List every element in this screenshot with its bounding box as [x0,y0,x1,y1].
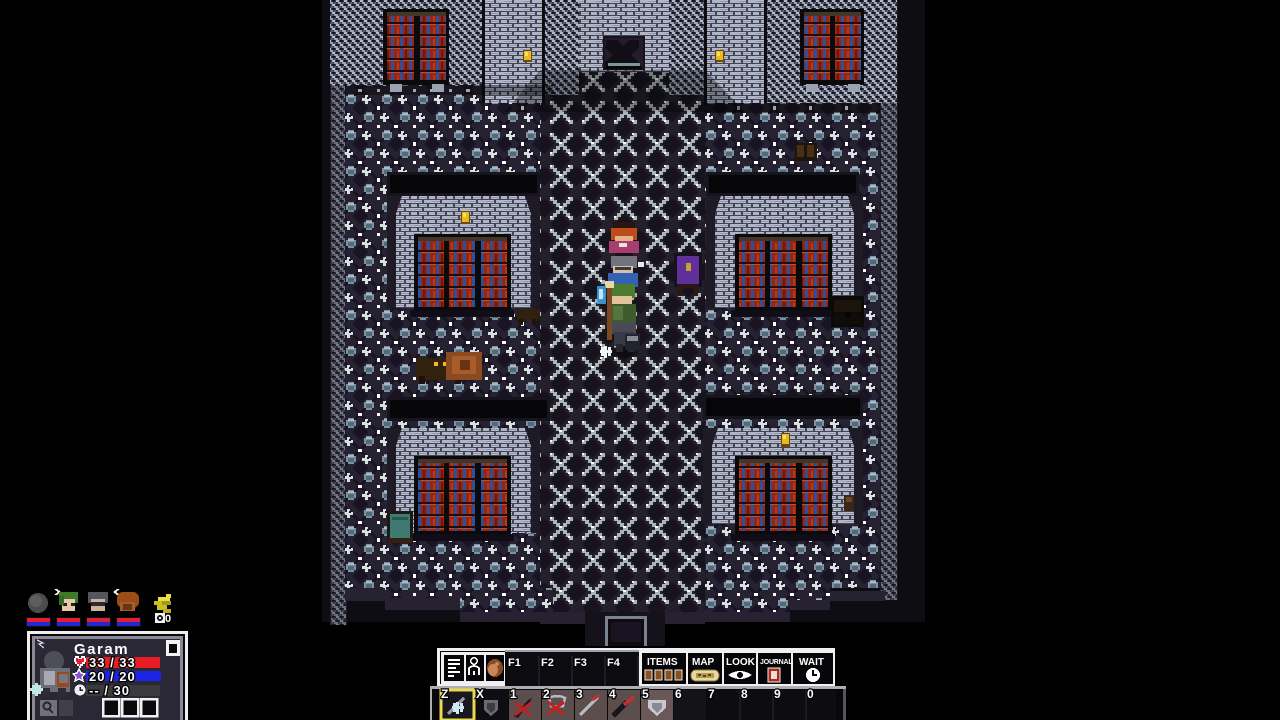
svg-text:F4: F4 [607,657,621,669]
svg-text:X: X [476,687,484,701]
svg-text:MAP: MAP [692,657,715,668]
svg-text:WAIT: WAIT [799,657,824,668]
svg-text:ITEMS: ITEMS [647,657,678,668]
svg-text:1: 1 [510,687,517,701]
svg-text:3: 3 [576,687,583,701]
svg-text:5: 5 [642,687,649,701]
svg-text:20 / 20: 20 / 20 [89,669,136,684]
svg-text:2: 2 [543,687,550,701]
svg-text:JOURNAL: JOURNAL [760,659,793,666]
svg-text:9: 9 [774,687,781,701]
svg-text:-- / 30: -- / 30 [89,683,130,698]
svg-text:0: 0 [165,613,171,625]
svg-text:F1: F1 [508,657,521,669]
svg-text:F3: F3 [574,657,587,669]
svg-text:F2: F2 [541,657,554,669]
svg-text:LOOK: LOOK [726,657,756,668]
svg-text:0: 0 [807,687,814,701]
svg-text:4: 4 [609,687,616,701]
svg-text:33 / 33: 33 / 33 [89,655,136,670]
svg-text:8: 8 [741,687,748,701]
svg-text:Z: Z [441,687,448,701]
svg-text:7: 7 [708,687,715,701]
svg-text:6: 6 [675,687,682,701]
